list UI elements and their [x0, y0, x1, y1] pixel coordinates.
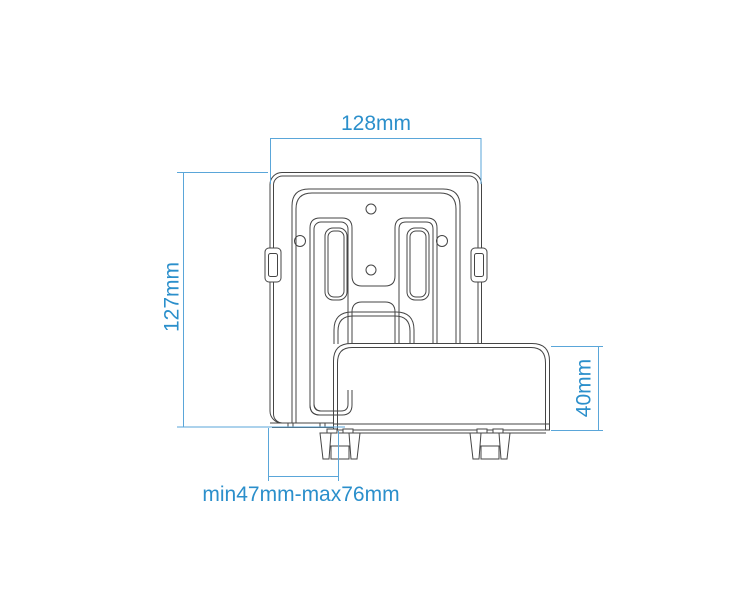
dimension-front-height: 40mm	[551, 347, 603, 431]
right-foot-flange-a	[470, 433, 481, 459]
left-foot-tab-b	[343, 429, 353, 433]
right-leg-bevel	[399, 222, 433, 343]
side-clips	[265, 248, 487, 282]
dim-label-front-height: 40mm	[572, 359, 595, 417]
right-foot-bar	[481, 446, 499, 459]
dim-label-bottom-range: min47mm-max76mm	[202, 483, 399, 506]
right-foot-tab-b	[493, 429, 503, 433]
dimension-left-height: 127mm	[160, 173, 345, 428]
right-slot-inner	[410, 231, 426, 297]
drawing-canvas: 128mm 127mm 40mm min47mm-max76mm	[0, 0, 750, 600]
keyhole-slots	[325, 228, 429, 300]
mount-drawing	[265, 173, 550, 460]
wall-mount-diagram: 128mm 127mm 40mm min47mm-max76mm	[0, 0, 750, 600]
screw-hole-top-center	[366, 204, 376, 214]
device-holder	[334, 344, 550, 434]
cable-arch	[334, 312, 414, 344]
left-foot-flange-a	[320, 433, 331, 459]
screw-hole-mid-center	[366, 265, 376, 275]
screw-holes	[295, 204, 448, 275]
dimension-bottom-range: min47mm-max76mm	[202, 428, 399, 506]
screw-hole-right	[437, 236, 448, 247]
dim-label-top-width: 128mm	[341, 112, 411, 135]
right-foot-flange-b	[499, 433, 510, 459]
left-slot-inner	[328, 231, 344, 297]
holder-outer	[334, 344, 550, 431]
left-foot-flange-b	[349, 433, 360, 459]
right-foot-tab-a	[477, 429, 487, 433]
dim-label-left-height: 127mm	[160, 262, 183, 332]
left-foot-tab-a	[327, 429, 337, 433]
left-foot-bar	[331, 446, 349, 459]
dimension-top-width: 128mm	[270, 112, 482, 184]
dimension-annotations: 128mm 127mm 40mm min47mm-max76mm	[160, 112, 603, 506]
